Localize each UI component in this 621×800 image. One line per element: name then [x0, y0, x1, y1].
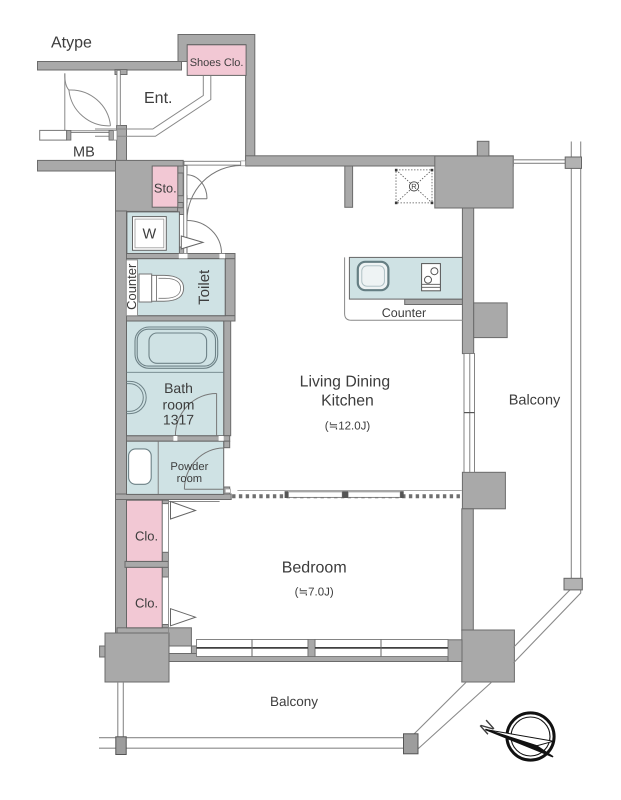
- svg-text:MB: MB: [73, 144, 95, 160]
- svg-text:Sto.: Sto.: [154, 181, 177, 196]
- svg-text:room: room: [177, 473, 203, 485]
- svg-text:Bedroom: Bedroom: [282, 560, 347, 577]
- svg-text:(≒7.0J): (≒7.0J): [295, 587, 334, 599]
- svg-text:Clo.: Clo.: [135, 595, 158, 610]
- svg-text:Counter: Counter: [382, 306, 426, 320]
- svg-text:1317: 1317: [163, 412, 194, 428]
- svg-text:Balcony: Balcony: [270, 694, 318, 709]
- svg-text:room: room: [163, 397, 195, 413]
- svg-text:Clo.: Clo.: [135, 529, 158, 544]
- svg-text:Powder: Powder: [170, 461, 208, 473]
- svg-text:Ent.: Ent.: [144, 90, 172, 107]
- svg-text:W: W: [143, 227, 157, 243]
- svg-text:Counter: Counter: [124, 263, 139, 310]
- svg-text:Kitchen: Kitchen: [321, 392, 374, 409]
- svg-text:Bath: Bath: [164, 380, 193, 396]
- svg-text:R: R: [411, 182, 417, 191]
- svg-text:Balcony: Balcony: [509, 393, 561, 409]
- svg-text:ShoesClo.: ShoesClo.: [190, 57, 244, 69]
- svg-text:Toilet: Toilet: [196, 269, 213, 305]
- svg-text:Atype: Atype: [51, 35, 92, 52]
- svg-text:Living Dining: Living Dining: [300, 374, 390, 391]
- svg-text:(≒12.0J): (≒12.0J): [325, 420, 371, 432]
